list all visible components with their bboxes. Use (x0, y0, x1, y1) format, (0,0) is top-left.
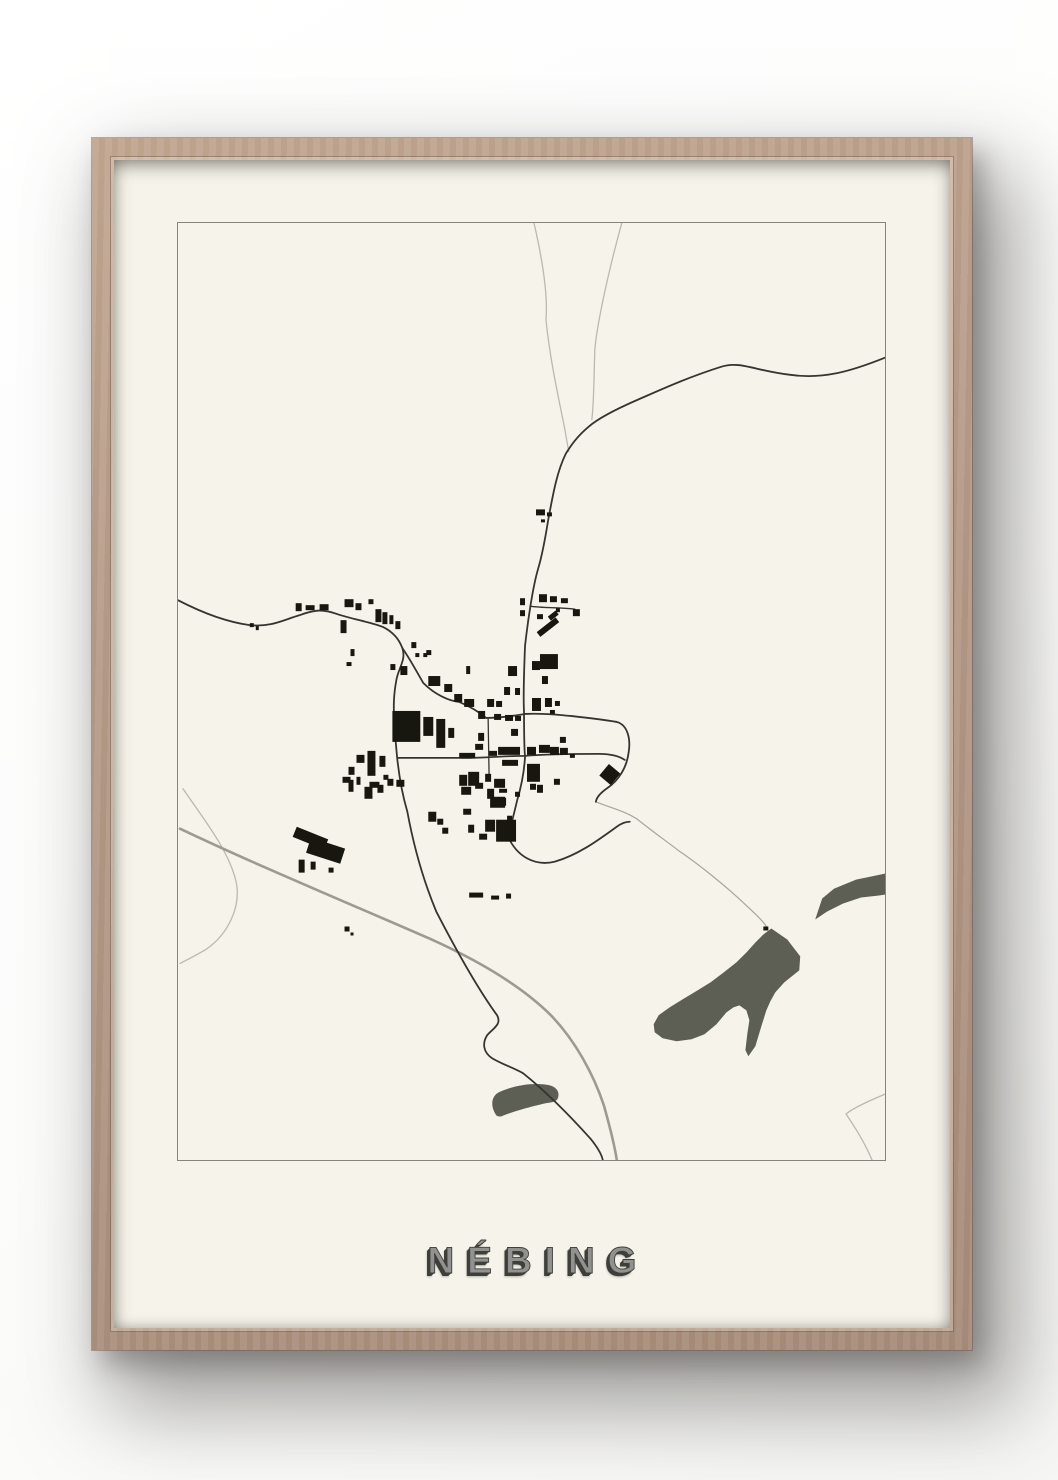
lake-northeast-band (815, 874, 885, 920)
picture-frame: NÉBING (92, 138, 972, 1350)
lake-road (596, 802, 767, 927)
poster-sheet: NÉBING (114, 160, 950, 1328)
pond-bottom (492, 1084, 558, 1117)
lane-north-branch (530, 606, 575, 609)
minor-road-southwest (180, 789, 237, 964)
buildings (250, 509, 769, 935)
poster-title: NÉBING (114, 1240, 950, 1282)
lake-main (654, 928, 801, 1056)
water-bodies (492, 874, 885, 1117)
road-west-and-south (178, 600, 603, 1160)
minor-road-north-1 (534, 223, 569, 452)
railway-line (180, 829, 617, 1160)
map-canvas (178, 223, 885, 1160)
lane-center (488, 718, 489, 778)
town-map (177, 222, 886, 1161)
minor-road-corner-southeast (846, 1094, 885, 1160)
main-roads (178, 358, 885, 1160)
minor-road-north-2 (592, 223, 622, 420)
street-upper (486, 714, 629, 802)
road-village-south-link (508, 822, 630, 863)
road-bend-branch (402, 648, 486, 718)
minor-roads (180, 223, 885, 1160)
poster-photo: NÉBING (0, 0, 1058, 1480)
